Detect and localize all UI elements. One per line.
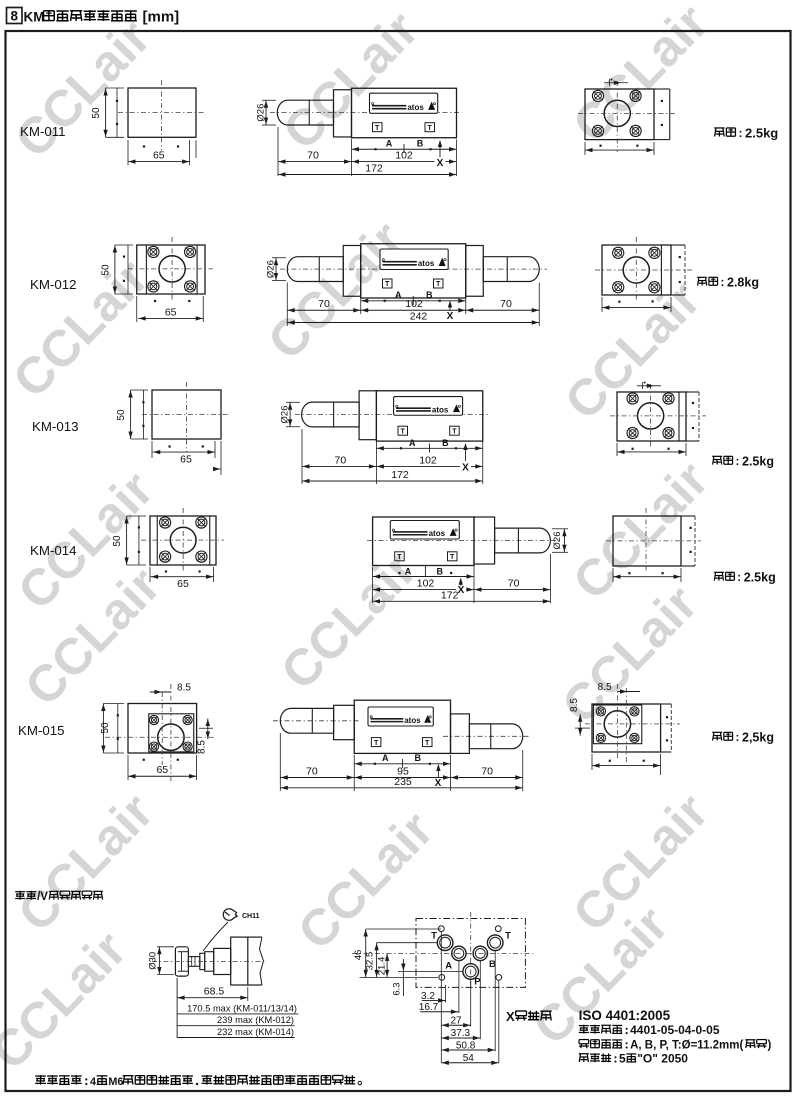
svg-text:T: T bbox=[425, 740, 430, 747]
svg-text:70: 70 bbox=[306, 766, 318, 778]
svg-text:65: 65 bbox=[177, 578, 189, 590]
svg-text:6.3: 6.3 bbox=[391, 982, 402, 995]
svg-text:Ø26: Ø26 bbox=[256, 104, 267, 122]
svg-text:X: X bbox=[458, 585, 465, 596]
svg-text:21.4: 21.4 bbox=[377, 957, 388, 976]
svg-text:Ø30: Ø30 bbox=[147, 952, 158, 970]
svg-text::: : bbox=[737, 572, 741, 584]
svg-text:atos: atos bbox=[404, 716, 421, 725]
svg-text:A: A bbox=[395, 290, 402, 300]
svg-text:KM: KM bbox=[24, 10, 45, 25]
svg-text:50: 50 bbox=[91, 107, 102, 119]
svg-text:170.5 max (KM-011/13/14): 170.5 max (KM-011/13/14) bbox=[187, 1003, 297, 1013]
svg-text:Ø26: Ø26 bbox=[552, 532, 563, 550]
svg-text:B: B bbox=[442, 438, 449, 448]
svg-text:KM-014: KM-014 bbox=[30, 543, 77, 558]
svg-text:2,5kg: 2,5kg bbox=[742, 731, 774, 745]
svg-text:atos: atos bbox=[432, 405, 449, 414]
svg-text:T: T bbox=[374, 740, 379, 747]
svg-text::: : bbox=[736, 456, 740, 468]
svg-text:70: 70 bbox=[481, 766, 493, 778]
svg-text:32.5: 32.5 bbox=[365, 952, 376, 971]
svg-text:A, B, P, T:Ø=11.2mm(: A, B, P, T:Ø=11.2mm( bbox=[630, 1040, 743, 1052]
svg-text:X: X bbox=[506, 1009, 515, 1024]
svg-text:4401-05-04-0-05: 4401-05-04-0-05 bbox=[630, 1023, 720, 1037]
svg-text:172: 172 bbox=[441, 589, 459, 601]
svg-text::: : bbox=[739, 126, 743, 140]
svg-text:"O" 2050: "O" 2050 bbox=[637, 1052, 688, 1066]
svg-text:X: X bbox=[447, 311, 454, 322]
svg-text:50: 50 bbox=[116, 409, 127, 421]
svg-text:B: B bbox=[415, 753, 422, 763]
svg-text::: : bbox=[721, 277, 725, 289]
svg-text:5: 5 bbox=[619, 1052, 626, 1066]
svg-text:239 max (KM-012): 239 max (KM-012) bbox=[217, 1015, 294, 1025]
svg-text:65: 65 bbox=[153, 150, 165, 162]
svg-text:70: 70 bbox=[508, 578, 520, 590]
svg-text::: : bbox=[736, 732, 740, 744]
svg-text:M6: M6 bbox=[108, 1076, 123, 1088]
svg-text:Ø26: Ø26 bbox=[266, 260, 277, 278]
svg-text:KM-011: KM-011 bbox=[20, 124, 66, 139]
svg-text:KM-012: KM-012 bbox=[30, 277, 77, 292]
svg-text:X: X bbox=[437, 158, 444, 169]
svg-text:4: 4 bbox=[90, 1076, 96, 1088]
svg-text:KM-015: KM-015 bbox=[18, 723, 65, 738]
svg-text:8.5: 8.5 bbox=[197, 740, 208, 754]
svg-text:A: A bbox=[405, 567, 412, 577]
svg-text:65: 65 bbox=[156, 764, 168, 776]
svg-text:X: X bbox=[462, 463, 469, 474]
svg-text:242: 242 bbox=[410, 311, 428, 323]
svg-text:68.5: 68.5 bbox=[204, 986, 225, 998]
svg-text:B: B bbox=[426, 290, 433, 300]
svg-text:70: 70 bbox=[335, 454, 347, 466]
svg-text:102: 102 bbox=[417, 578, 435, 590]
svg-text:T: T bbox=[397, 554, 402, 561]
svg-text:B: B bbox=[436, 567, 443, 577]
svg-text:50: 50 bbox=[100, 722, 111, 734]
svg-text:T: T bbox=[436, 281, 441, 288]
svg-text:B: B bbox=[417, 139, 424, 149]
svg-text:8.5: 8.5 bbox=[569, 698, 580, 712]
svg-text:70: 70 bbox=[500, 298, 512, 310]
svg-text:2.5kg: 2.5kg bbox=[742, 455, 774, 469]
svg-text:8: 8 bbox=[10, 9, 18, 24]
svg-text:172: 172 bbox=[391, 469, 409, 481]
svg-text:T: T bbox=[375, 125, 380, 132]
svg-text:KM-013: KM-013 bbox=[32, 419, 79, 434]
svg-text:T: T bbox=[401, 428, 406, 435]
svg-text:[mm]: [mm] bbox=[143, 9, 180, 26]
svg-text:65: 65 bbox=[180, 454, 192, 466]
svg-text:T: T bbox=[505, 931, 511, 942]
svg-text:A: A bbox=[382, 753, 389, 763]
svg-text:): ) bbox=[767, 1040, 771, 1052]
svg-text:T: T bbox=[428, 125, 433, 132]
svg-text:ISO 4401:2005: ISO 4401:2005 bbox=[579, 1008, 671, 1023]
svg-text:2.5kg: 2.5kg bbox=[744, 571, 776, 585]
svg-text:atos: atos bbox=[418, 259, 435, 268]
svg-text:T: T bbox=[385, 281, 390, 288]
svg-text:CH11: CH11 bbox=[242, 913, 260, 920]
svg-text:A: A bbox=[409, 438, 416, 448]
svg-text:102: 102 bbox=[405, 298, 423, 310]
svg-text:A: A bbox=[445, 960, 452, 971]
svg-text:50: 50 bbox=[101, 264, 112, 276]
svg-text:102: 102 bbox=[419, 454, 437, 466]
svg-text:8.5: 8.5 bbox=[598, 682, 612, 693]
svg-text:T: T bbox=[450, 554, 455, 561]
svg-text:37.3: 37.3 bbox=[451, 1028, 471, 1039]
svg-text:65: 65 bbox=[165, 306, 177, 318]
svg-text:235: 235 bbox=[394, 776, 412, 788]
svg-text:70: 70 bbox=[318, 298, 330, 310]
svg-text:Ø26: Ø26 bbox=[280, 406, 291, 424]
svg-text:T: T bbox=[452, 428, 457, 435]
svg-text:/V: /V bbox=[37, 891, 48, 903]
svg-text:50: 50 bbox=[112, 535, 123, 547]
svg-text:atos: atos bbox=[407, 103, 424, 112]
svg-text:2.5kg: 2.5kg bbox=[745, 126, 778, 141]
svg-text:8.5: 8.5 bbox=[177, 683, 191, 694]
svg-text:A: A bbox=[386, 139, 393, 149]
svg-text:2.8kg: 2.8kg bbox=[727, 276, 759, 290]
svg-text:46: 46 bbox=[353, 950, 364, 961]
svg-text:T: T bbox=[431, 931, 437, 942]
svg-text:atos: atos bbox=[429, 529, 446, 538]
svg-text:172: 172 bbox=[365, 163, 383, 175]
svg-text:102: 102 bbox=[395, 150, 413, 162]
svg-text:232 max (KM-014): 232 max (KM-014) bbox=[217, 1027, 294, 1037]
svg-text:70: 70 bbox=[307, 150, 319, 162]
